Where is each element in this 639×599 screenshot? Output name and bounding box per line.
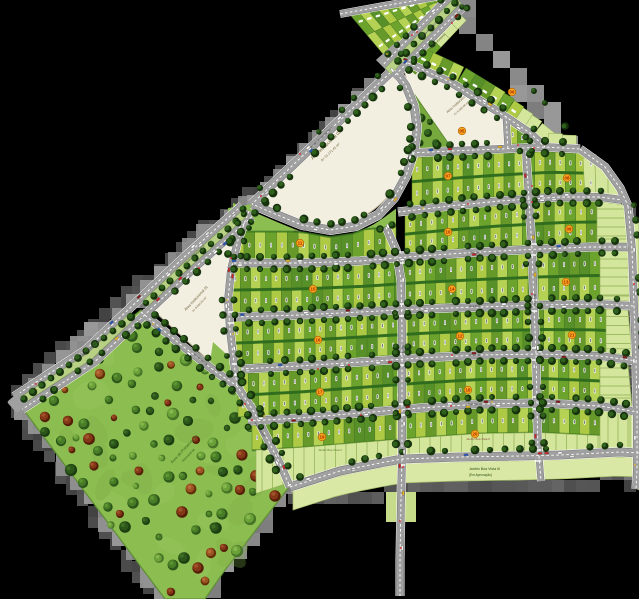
- svg-text:Jardim Boa Vista II: Jardim Boa Vista II: [466, 437, 490, 441]
- svg-text:Alameda 1: Alameda 1: [293, 229, 306, 233]
- svg-text:Rua Um: Rua Um: [470, 250, 481, 254]
- svg-text:(Em Aprovação): (Em Aprovação): [469, 473, 492, 477]
- svg-text:06: 06: [510, 90, 515, 95]
- svg-text:Rua Quatro: Rua Quatro: [468, 402, 482, 406]
- svg-text:16: 16: [316, 338, 321, 343]
- svg-text:10: 10: [446, 230, 451, 235]
- svg-text:20: 20: [473, 432, 478, 437]
- svg-text:12: 12: [458, 334, 463, 339]
- svg-text:08: 08: [565, 176, 570, 181]
- svg-text:Rua Cinco: Rua Cinco: [533, 294, 537, 307]
- svg-text:13: 13: [564, 280, 569, 285]
- svg-text:07: 07: [446, 174, 451, 179]
- svg-text:15: 15: [311, 287, 316, 292]
- svg-text:Jardim Boa Vista III: Jardim Boa Vista III: [469, 467, 500, 471]
- svg-text:09: 09: [567, 227, 572, 232]
- svg-text:11: 11: [298, 241, 303, 246]
- svg-text:14: 14: [450, 287, 455, 292]
- svg-text:21: 21: [570, 333, 575, 338]
- svg-text:Jardim Boa Vista II: Jardim Boa Vista II: [318, 448, 342, 452]
- svg-text:Rua Dois: Rua Dois: [469, 304, 481, 308]
- svg-text:19: 19: [320, 435, 325, 440]
- svg-text:05: 05: [460, 129, 465, 134]
- svg-text:17: 17: [318, 390, 323, 395]
- svg-text:18: 18: [466, 388, 471, 393]
- svg-text:Rua Três: Rua Três: [469, 353, 481, 357]
- svg-text:Rua Oito: Rua Oito: [401, 345, 405, 356]
